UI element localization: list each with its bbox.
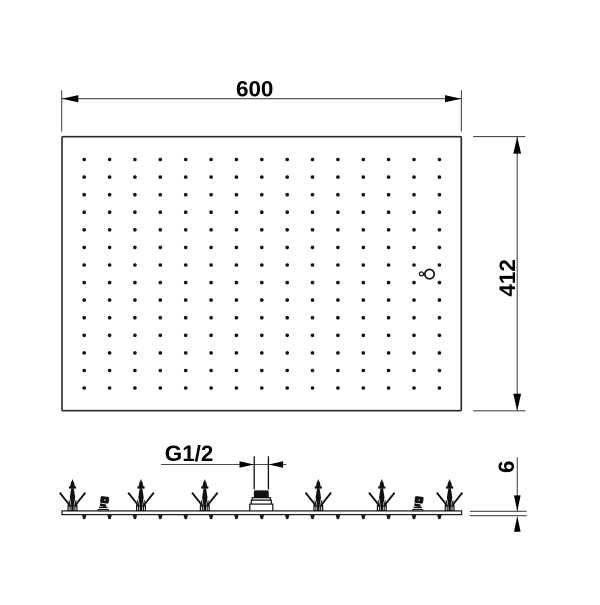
svg-text:G1/2: G1/2	[165, 441, 214, 466]
svg-text:6: 6	[494, 461, 519, 473]
svg-text:412: 412	[495, 259, 520, 296]
svg-text:600: 600	[236, 77, 273, 102]
